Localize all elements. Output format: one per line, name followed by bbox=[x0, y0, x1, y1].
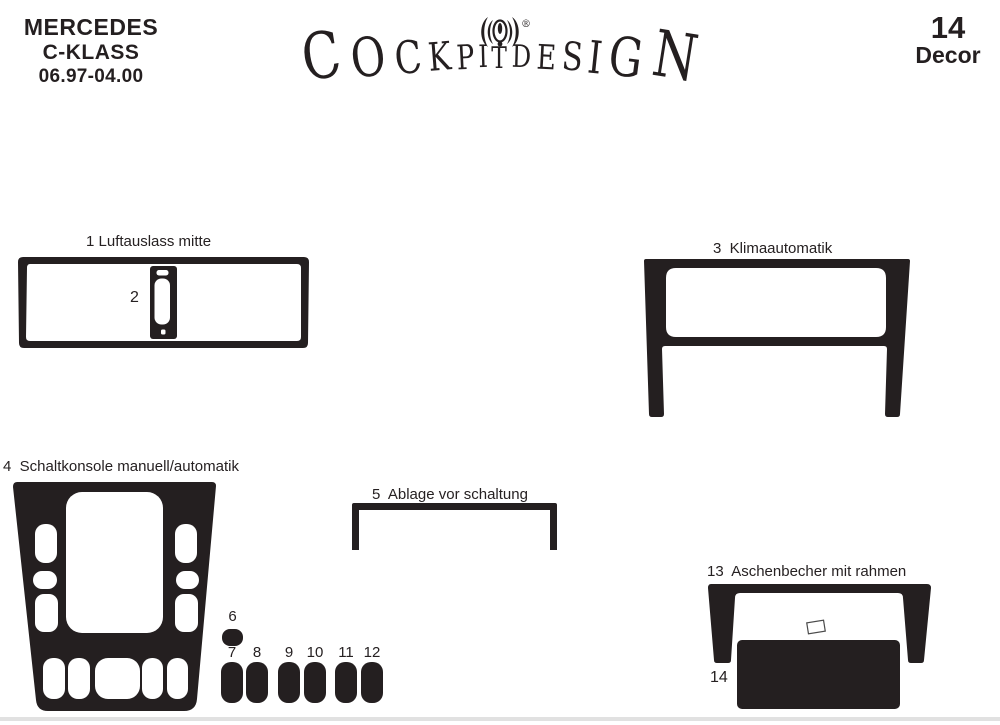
piece-9-shape bbox=[278, 662, 300, 703]
model-years: 06.97-04.00 bbox=[5, 66, 177, 88]
label-piece-5: 5 Ablage vor schaltung bbox=[372, 486, 528, 503]
brand-name: MERCEDES bbox=[5, 14, 177, 41]
label-piece-4: 4 Schaltkonsole manuell/automatik bbox=[3, 458, 239, 475]
model-name: C-KLASS bbox=[5, 41, 177, 66]
trim-pieces-diagram bbox=[0, 0, 1000, 725]
label-piece-1: 1 Luftauslass mitte bbox=[86, 233, 211, 250]
piece-2-vent-insert-shape bbox=[150, 266, 177, 339]
cutout-marker bbox=[807, 620, 826, 634]
catalog-page: MERCEDES C-KLASS 06.97-04.00 COCKPITDESI… bbox=[0, 0, 1000, 725]
label-piece-14: 14 bbox=[710, 669, 728, 687]
label-piece-9: 9 bbox=[278, 644, 300, 661]
registered-trademark: ® bbox=[521, 19, 531, 30]
piece-11-shape bbox=[335, 662, 357, 703]
piece-14-lid-shape bbox=[737, 640, 900, 709]
cockpitdesign-emblem-icon bbox=[477, 14, 523, 50]
label-piece-7: 7 bbox=[221, 644, 243, 661]
label-piece-8: 8 bbox=[246, 644, 268, 661]
decor-word: Decor bbox=[898, 44, 998, 67]
piece-12-shape bbox=[361, 662, 383, 703]
decor-count-block: 14 Decor bbox=[898, 12, 998, 67]
decor-count: 14 bbox=[898, 12, 998, 43]
label-piece-13: 13 Aschenbecher mit rahmen bbox=[707, 563, 906, 580]
label-piece-10: 10 bbox=[304, 644, 326, 661]
piece-8-shape bbox=[246, 662, 268, 703]
label-piece-6: 6 bbox=[222, 608, 243, 625]
label-piece-2: 2 bbox=[130, 289, 139, 307]
piece-5-tray-bracket-shape bbox=[352, 503, 557, 550]
label-piece-11: 11 bbox=[335, 644, 357, 661]
label-piece-12: 12 bbox=[361, 644, 383, 661]
piece-3-climate-frame-shape bbox=[644, 259, 910, 417]
vehicle-title: MERCEDES C-KLASS 06.97-04.00 bbox=[5, 14, 177, 88]
piece-10-shape bbox=[304, 662, 326, 703]
page-bottom-edge bbox=[0, 717, 1000, 721]
piece-4-shift-console-shape bbox=[13, 482, 216, 711]
label-piece-3: 3 Klimaautomatik bbox=[713, 240, 832, 257]
piece-7-shape bbox=[221, 662, 243, 703]
